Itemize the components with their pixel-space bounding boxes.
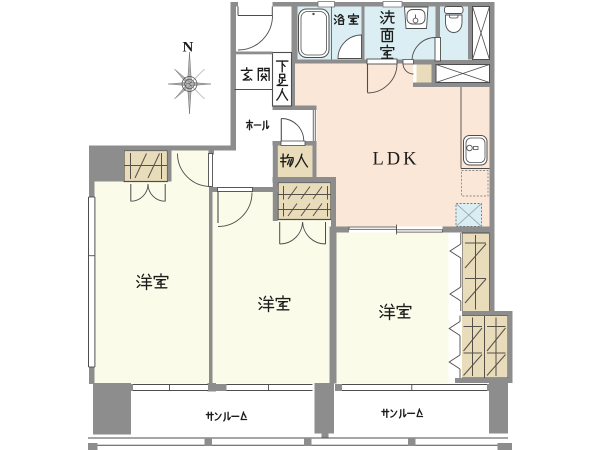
svg-text:N: N xyxy=(183,40,194,56)
svg-text:LDK: LDK xyxy=(373,150,420,170)
